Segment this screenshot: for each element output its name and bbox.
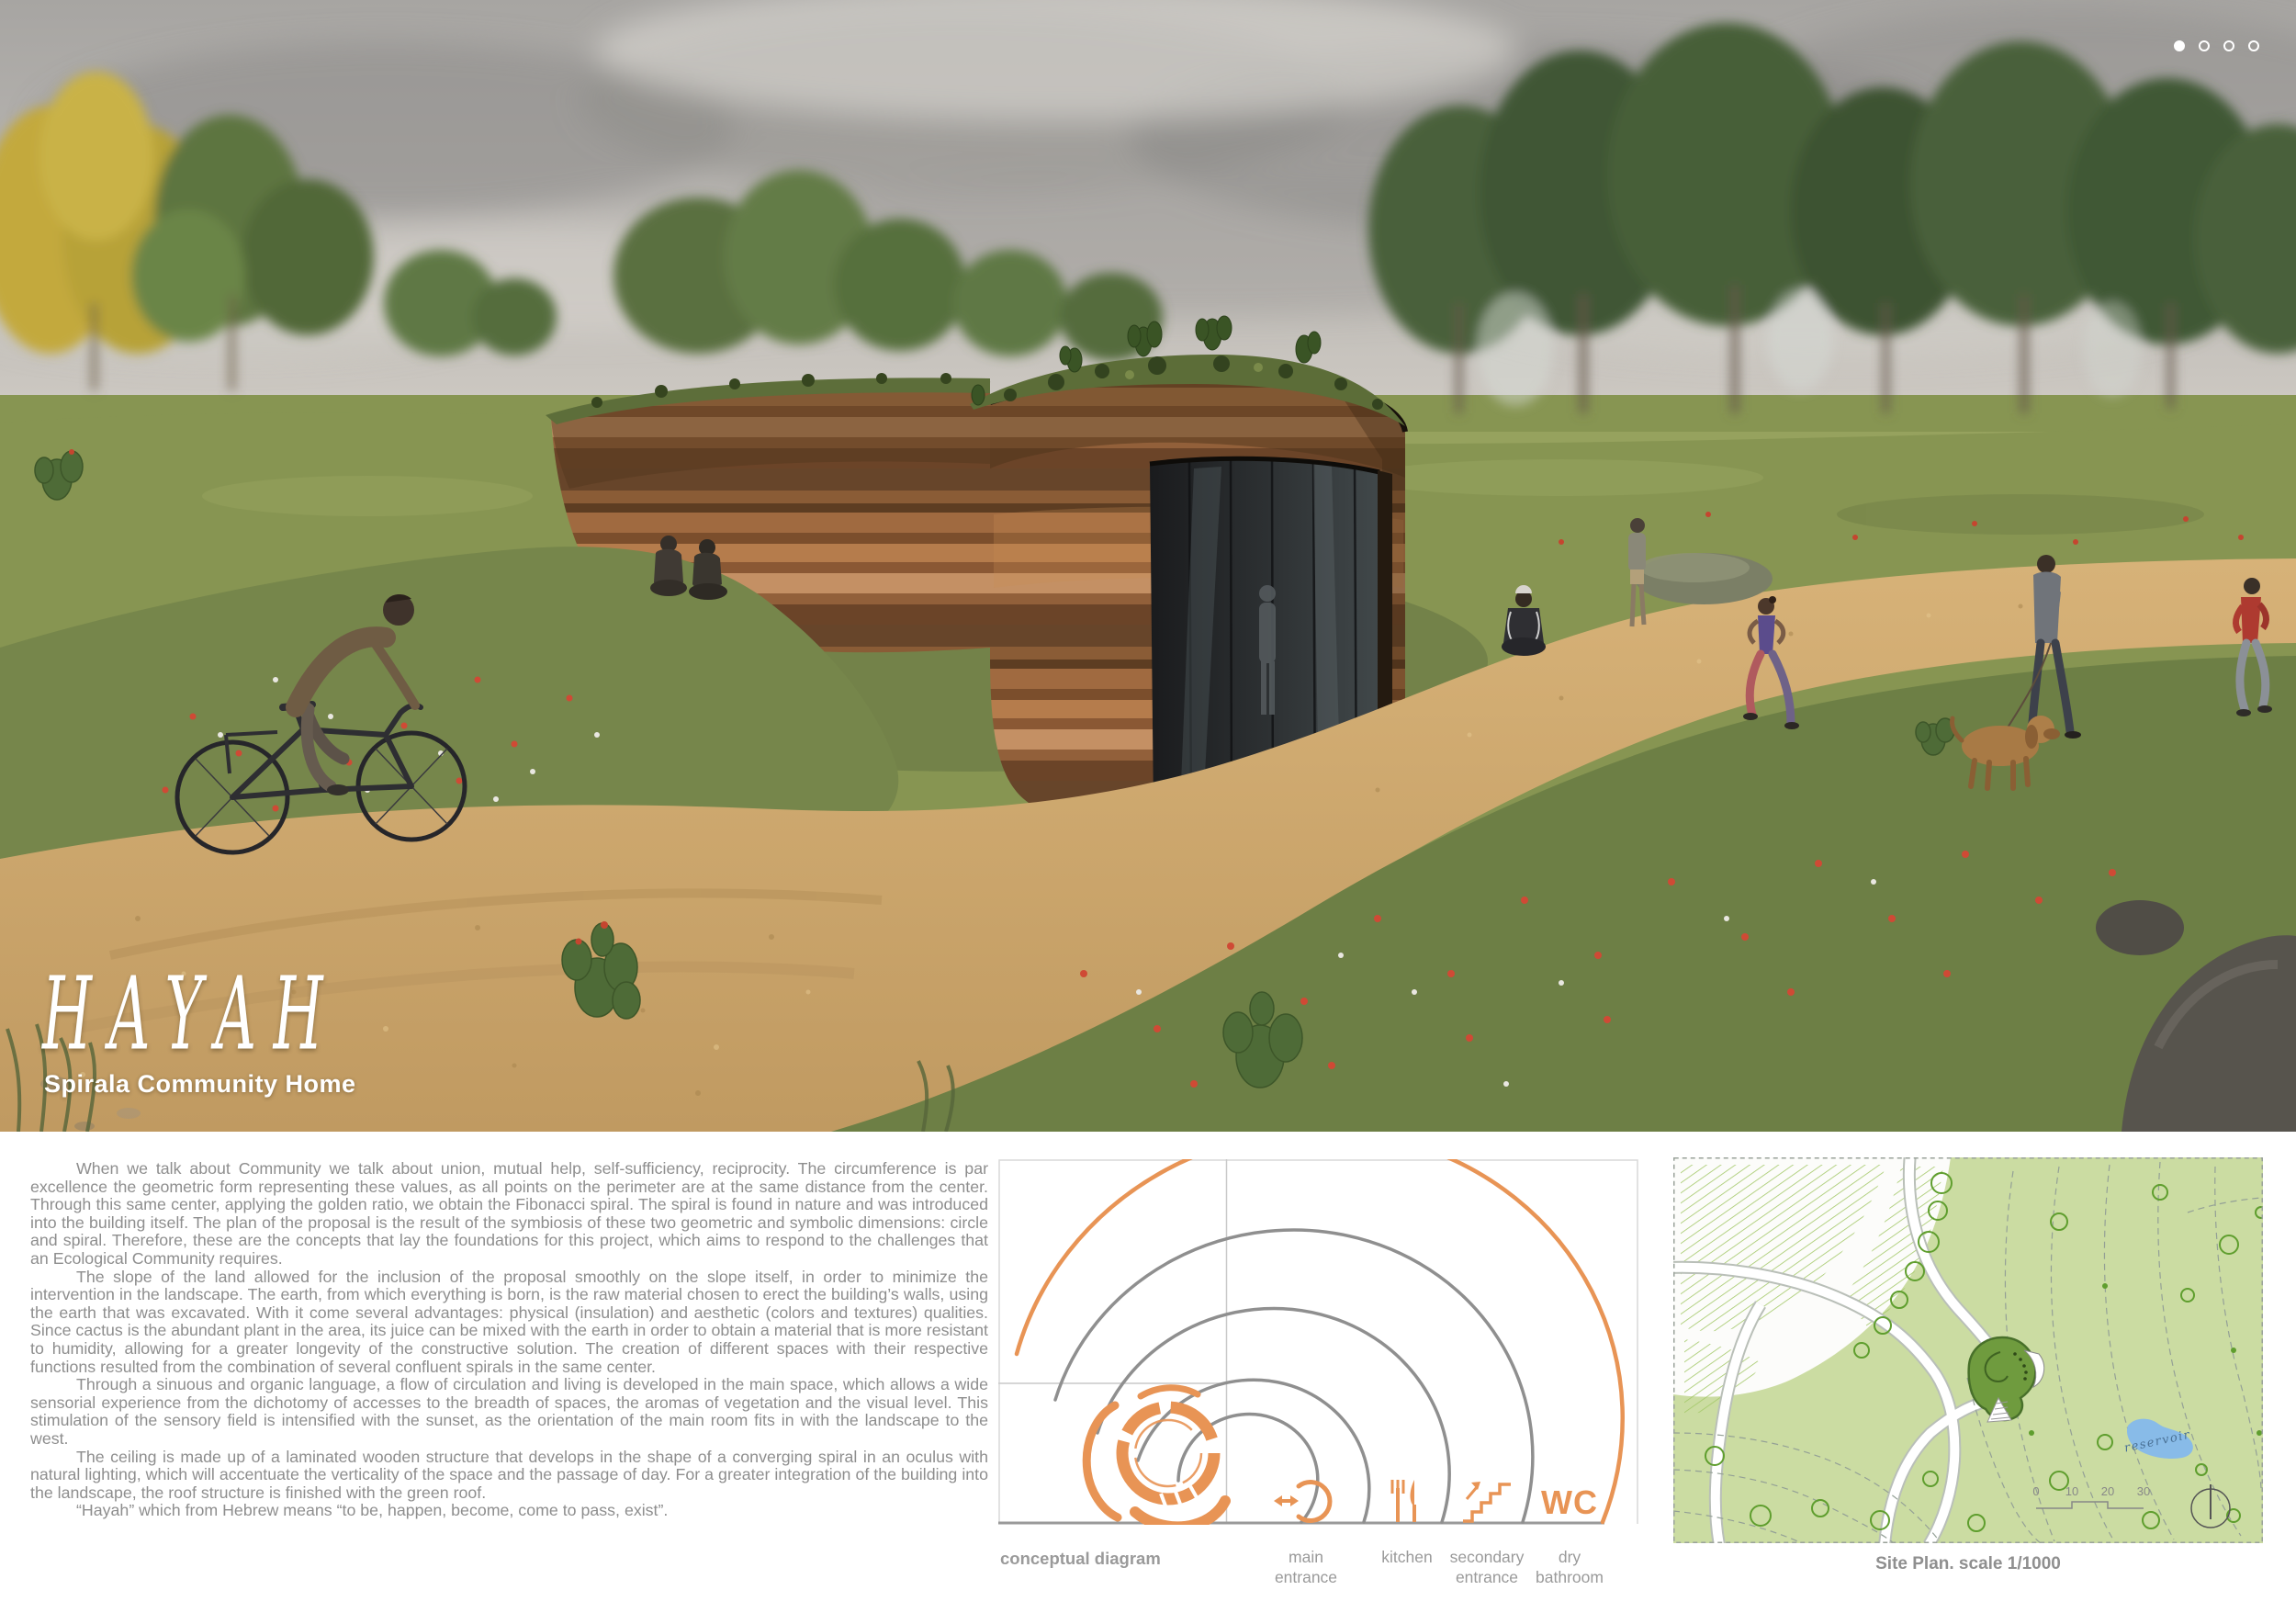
fibonacci-spiral-diagram: WC: [998, 1159, 1638, 1525]
secondary-entrance-icon: [1463, 1482, 1511, 1521]
siteplan-caption: Site Plan. scale 1/1000: [1673, 1554, 2263, 1574]
svg-text:20: 20: [2101, 1484, 2114, 1498]
svg-text:30: 30: [2137, 1484, 2150, 1498]
main-entrance-icon: [1274, 1483, 1330, 1521]
diagram-caption: conceptual diagram: [1000, 1549, 1161, 1569]
legend-dry-bathroom: dry bathroom: [1496, 1547, 1643, 1587]
site-plan-drawing: reservoir 0 10 20 30: [1673, 1157, 2263, 1543]
wc-icon: WC: [1541, 1483, 1598, 1521]
site-plan-panel: reservoir 0 10 20 30 Site Plan. scale 1/…: [1673, 1157, 2263, 1607]
paragraph: “Hayah” which from Hebrew means “to be, …: [30, 1502, 988, 1520]
carousel-dot-2[interactable]: [2199, 40, 2210, 51]
carousel-dot-3[interactable]: [2223, 40, 2234, 51]
carousel-dots: [2174, 40, 2259, 51]
hero-render: HAYAH Spirala Community Home: [0, 0, 2296, 1132]
conceptual-diagram-panel: WC conceptual diagram main entrance kitc…: [998, 1159, 1638, 1609]
project-title: HAYAH: [42, 961, 340, 1067]
carousel-dot-4[interactable]: [2248, 40, 2259, 51]
floor-plan-sketch: [1086, 1388, 1225, 1525]
paragraph: The ceiling is made up of a laminated wo…: [30, 1449, 988, 1503]
paragraph: The slope of the land allowed for the in…: [30, 1269, 988, 1377]
paragraph: When we talk about Community we talk abo…: [30, 1160, 988, 1269]
paragraph: Through a sinuous and organic language, …: [30, 1376, 988, 1448]
project-subtitle: Spirala Community Home: [44, 1070, 523, 1099]
carousel-dot-1[interactable]: [2174, 40, 2185, 51]
svg-text:0: 0: [2032, 1484, 2039, 1498]
hero-text: HAYAH Spirala Community Home: [42, 961, 523, 1099]
svg-text:10: 10: [2065, 1484, 2078, 1498]
boulder-mid: [1635, 553, 1773, 604]
info-band: When we talk about Community we talk abo…: [0, 1132, 2296, 1624]
project-description: When we talk about Community we talk abo…: [30, 1160, 988, 1520]
kitchen-icon: [1392, 1480, 1414, 1522]
